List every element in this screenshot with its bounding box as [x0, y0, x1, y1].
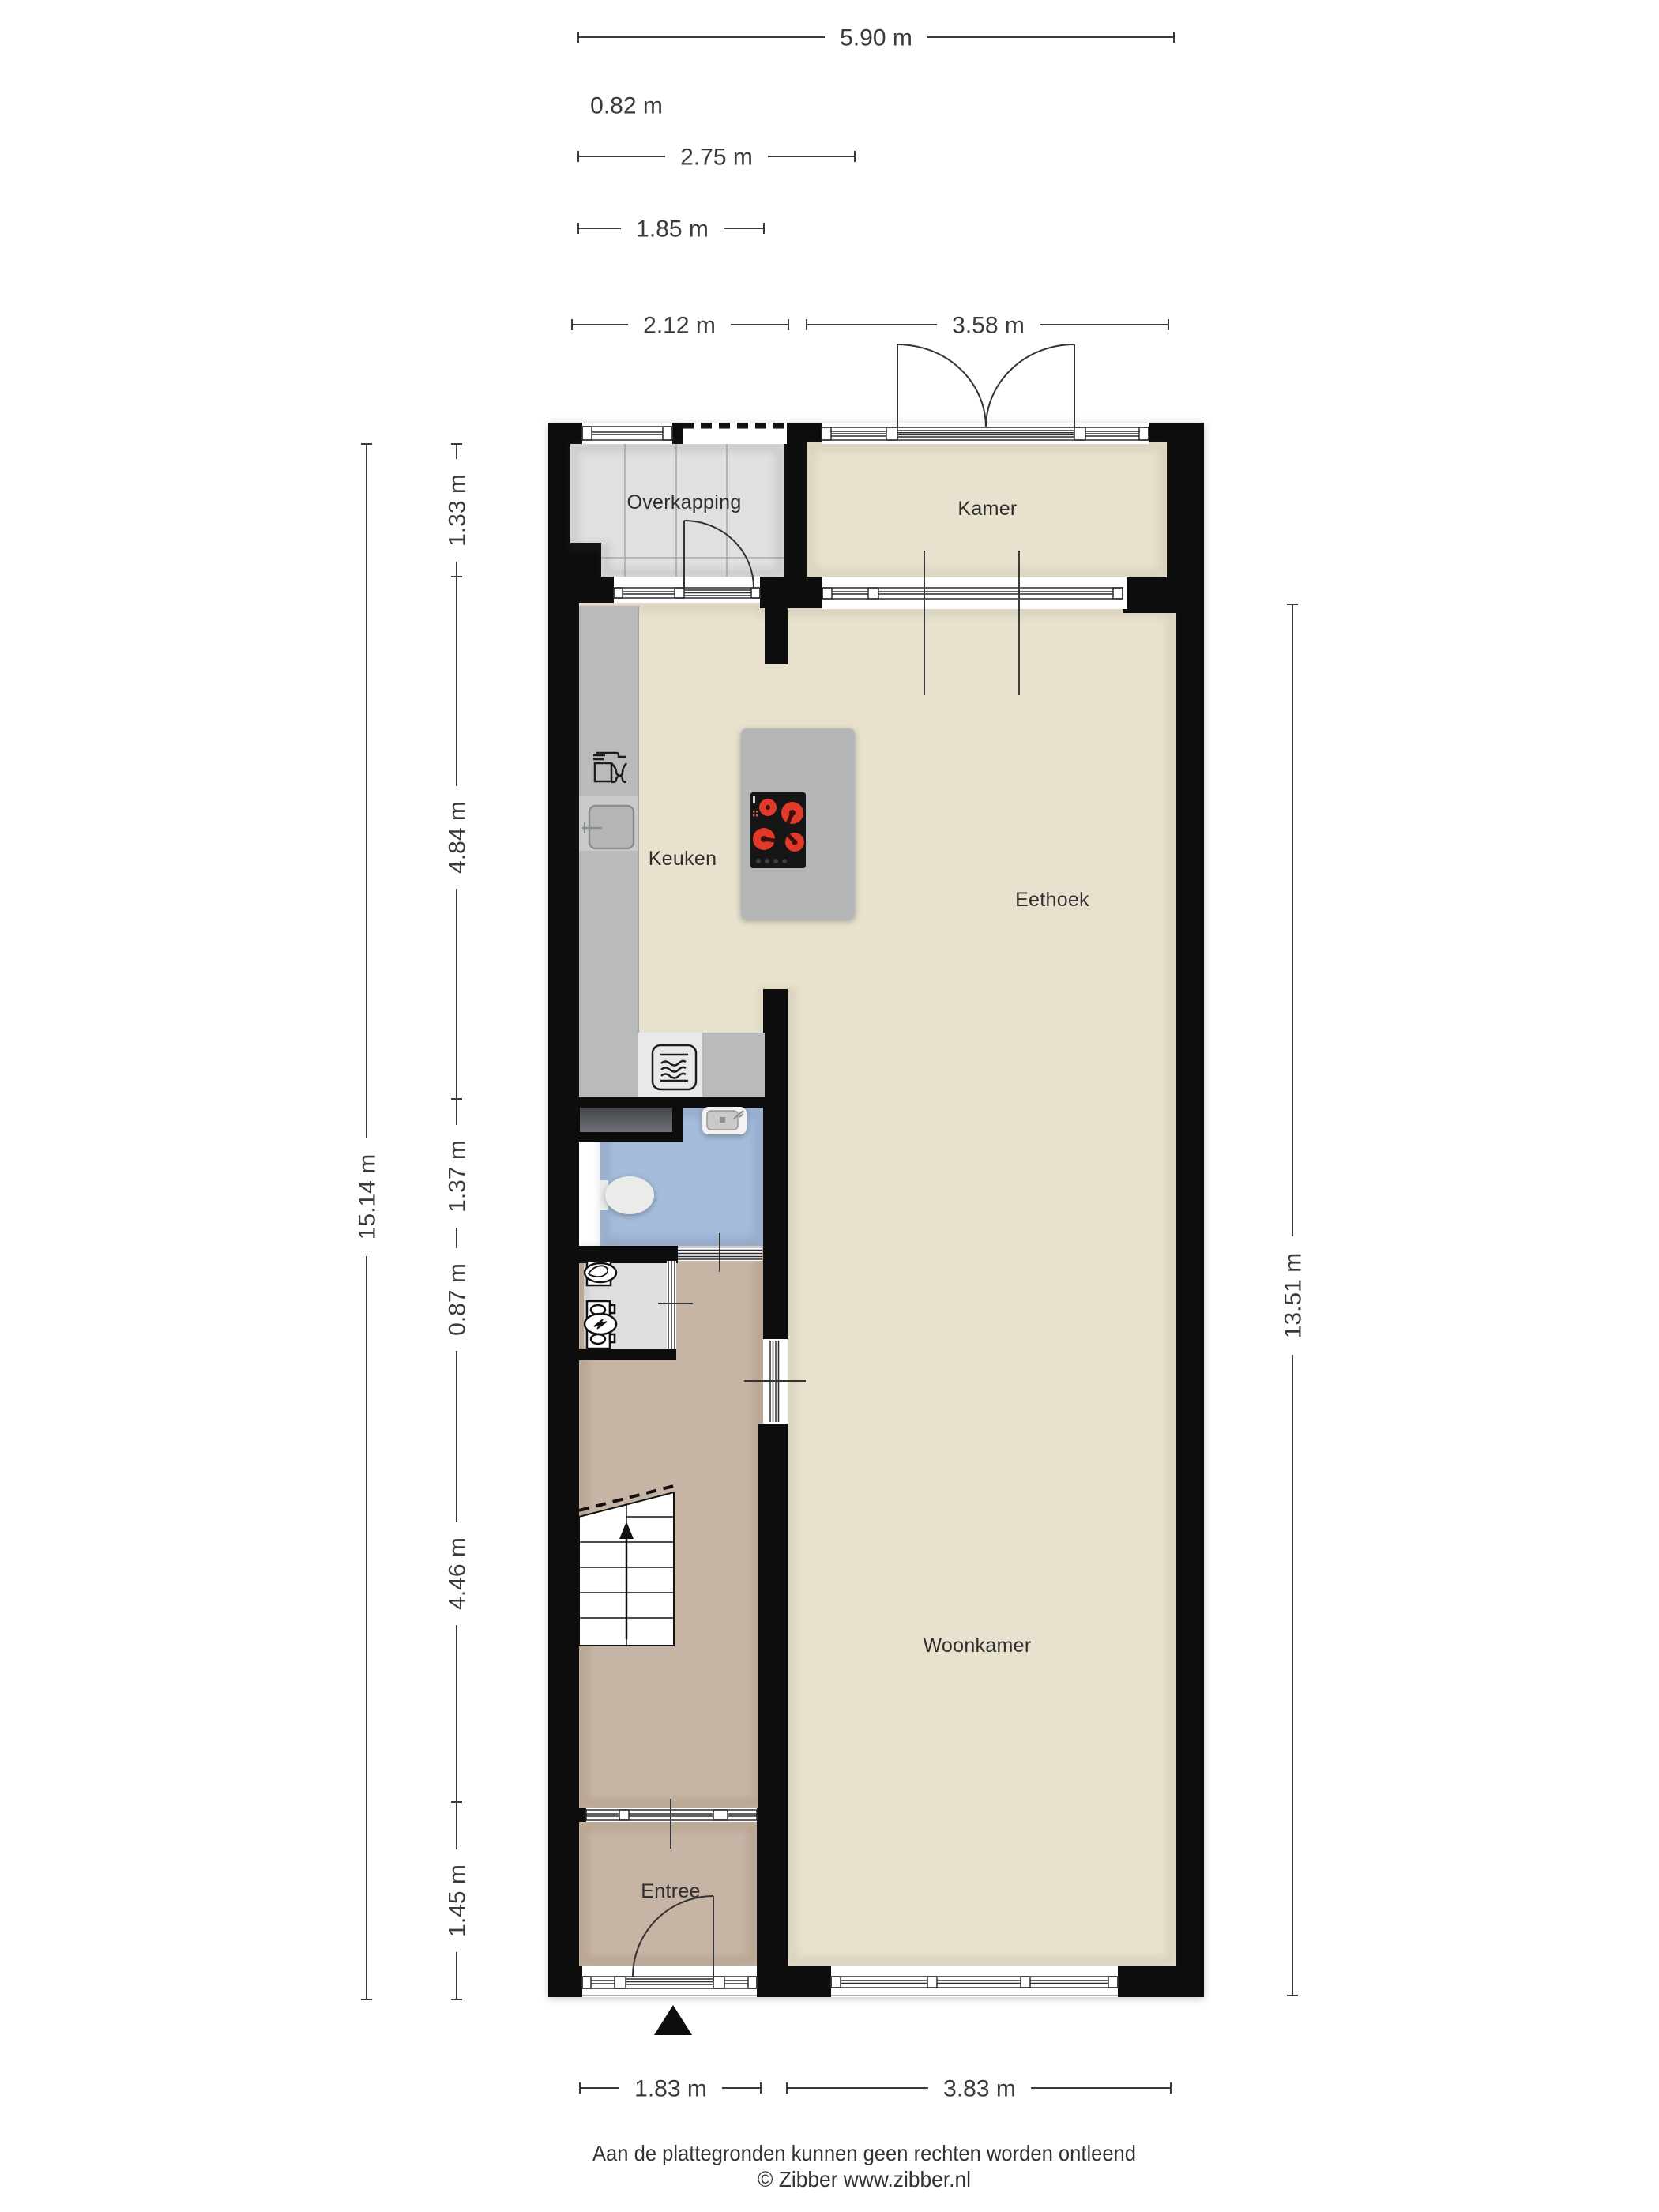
svg-text:4.46 m: 4.46 m	[445, 1537, 471, 1610]
svg-text:15.14 m: 15.14 m	[355, 1154, 381, 1240]
svg-text:3.83 m: 3.83 m	[943, 2076, 1016, 2102]
svg-text:0.87 m: 0.87 m	[445, 1263, 471, 1336]
svg-text:5.90 m: 5.90 m	[840, 25, 912, 51]
svg-text:© Zibber www.zibber.nl: © Zibber www.zibber.nl	[758, 2167, 971, 2191]
svg-text:Aan de plattegronden kunnen ge: Aan de plattegronden kunnen geen rechten…	[592, 2141, 1136, 2165]
svg-text:4.84 m: 4.84 m	[445, 801, 471, 874]
svg-text:Eethoek: Eethoek	[1015, 889, 1089, 911]
svg-text:1.85 m: 1.85 m	[636, 216, 709, 243]
svg-text:1.45 m: 1.45 m	[445, 1864, 471, 1937]
svg-text:1.33 m: 1.33 m	[445, 474, 471, 547]
svg-text:1.83 m: 1.83 m	[634, 2076, 707, 2102]
svg-text:2.12 m: 2.12 m	[643, 313, 716, 339]
svg-text:3.58 m: 3.58 m	[952, 313, 1025, 339]
svg-text:Woonkamer: Woonkamer	[923, 1635, 1031, 1657]
svg-text:13.51 m: 13.51 m	[1281, 1253, 1307, 1338]
svg-text:2.75 m: 2.75 m	[680, 145, 753, 171]
svg-text:Overkapping: Overkapping	[626, 491, 741, 513]
svg-text:Entree: Entree	[641, 1880, 700, 1902]
svg-text:1.37 m: 1.37 m	[445, 1140, 471, 1213]
svg-text:0.82 m: 0.82 m	[590, 93, 663, 119]
svg-text:Kamer: Kamer	[957, 498, 1017, 520]
svg-text:Keuken: Keuken	[649, 848, 717, 870]
